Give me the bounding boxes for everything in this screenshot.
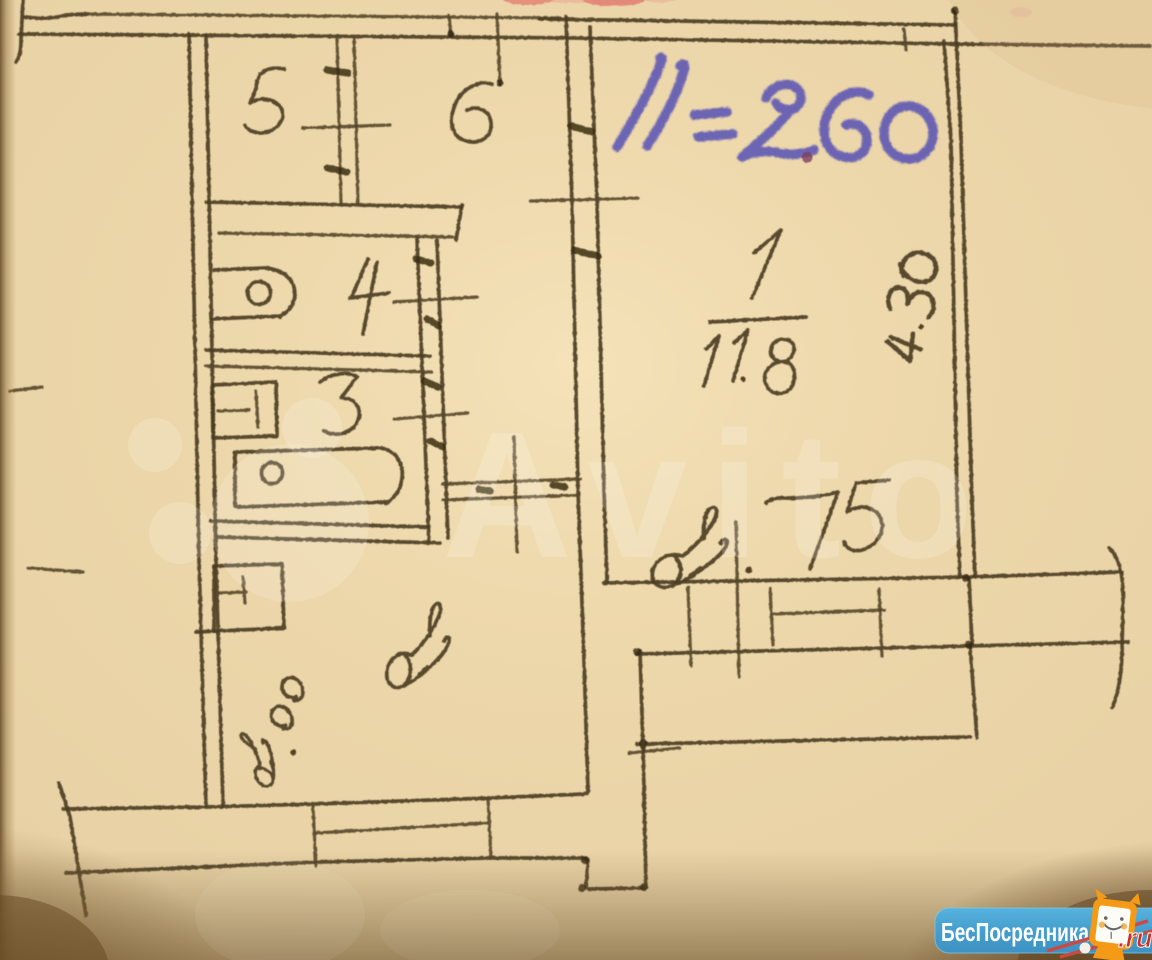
svg-text:Avito: Avito xyxy=(442,395,995,596)
svg-text:.ru: .ru xyxy=(1118,923,1152,953)
svg-text:БесПосредника: БесПосредника xyxy=(941,917,1089,947)
